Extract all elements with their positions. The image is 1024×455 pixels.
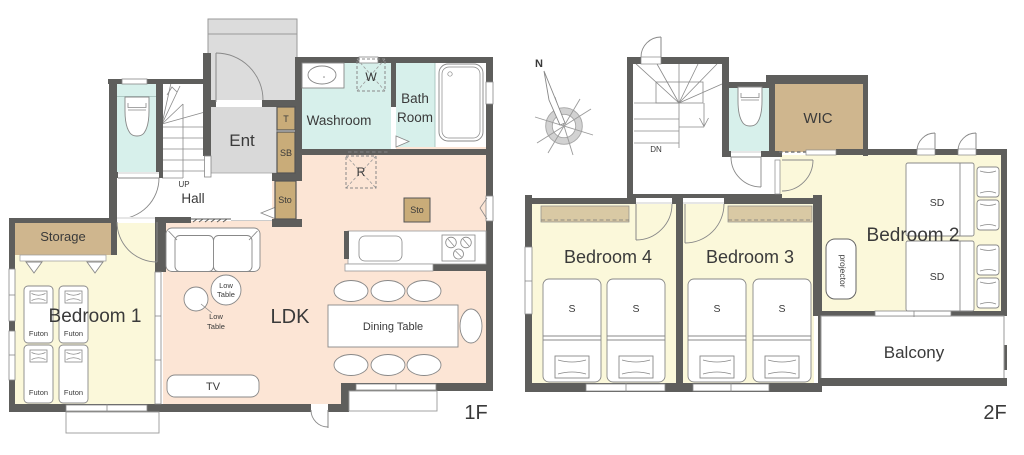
- svg-text:DN: DN: [650, 145, 662, 154]
- svg-text:1F: 1F: [464, 402, 487, 424]
- svg-text:Low: Low: [209, 312, 223, 321]
- svg-text:projector: projector: [838, 254, 848, 287]
- svg-text:W: W: [365, 70, 377, 84]
- svg-text:Bedroom 3: Bedroom 3: [706, 247, 794, 267]
- svg-text:Ent: Ent: [229, 131, 255, 150]
- svg-text:Bath: Bath: [401, 91, 429, 106]
- svg-text:Balcony: Balcony: [884, 343, 945, 362]
- svg-text:Futon: Futon: [29, 329, 48, 338]
- svg-text:N: N: [535, 58, 543, 70]
- svg-text:Bedroom 2: Bedroom 2: [867, 225, 960, 246]
- svg-text:Washroom: Washroom: [307, 113, 372, 128]
- svg-text:UP: UP: [178, 180, 189, 189]
- svg-text:Dining Table: Dining Table: [363, 321, 423, 333]
- svg-text:LDK: LDK: [271, 306, 311, 328]
- svg-text:SD: SD: [930, 271, 945, 283]
- svg-text:Futon: Futon: [29, 388, 48, 397]
- svg-text:S: S: [568, 303, 575, 315]
- svg-text:SB: SB: [280, 148, 292, 158]
- svg-text:Storage: Storage: [40, 229, 86, 244]
- svg-text:S: S: [713, 303, 720, 315]
- svg-text:Sto: Sto: [410, 205, 424, 215]
- svg-text:Sto: Sto: [278, 195, 292, 205]
- svg-text:Futon: Futon: [64, 329, 83, 338]
- svg-text:Bedroom 4: Bedroom 4: [564, 247, 652, 267]
- svg-text:S: S: [778, 303, 785, 315]
- svg-text:Room: Room: [397, 110, 433, 125]
- svg-text:R: R: [357, 165, 366, 179]
- svg-text:2F: 2F: [983, 402, 1006, 424]
- svg-text:T: T: [283, 114, 289, 124]
- svg-text:S: S: [632, 303, 639, 315]
- svg-text:SD: SD: [930, 197, 945, 209]
- svg-text:Hall: Hall: [181, 191, 204, 206]
- svg-text:Futon: Futon: [64, 388, 83, 397]
- svg-text:Bedroom 1: Bedroom 1: [49, 306, 142, 327]
- svg-text:Table: Table: [217, 290, 235, 299]
- svg-text:TV: TV: [206, 381, 221, 393]
- svg-text:Table: Table: [207, 322, 225, 331]
- svg-text:WIC: WIC: [803, 110, 832, 127]
- svg-text:Low: Low: [219, 281, 233, 290]
